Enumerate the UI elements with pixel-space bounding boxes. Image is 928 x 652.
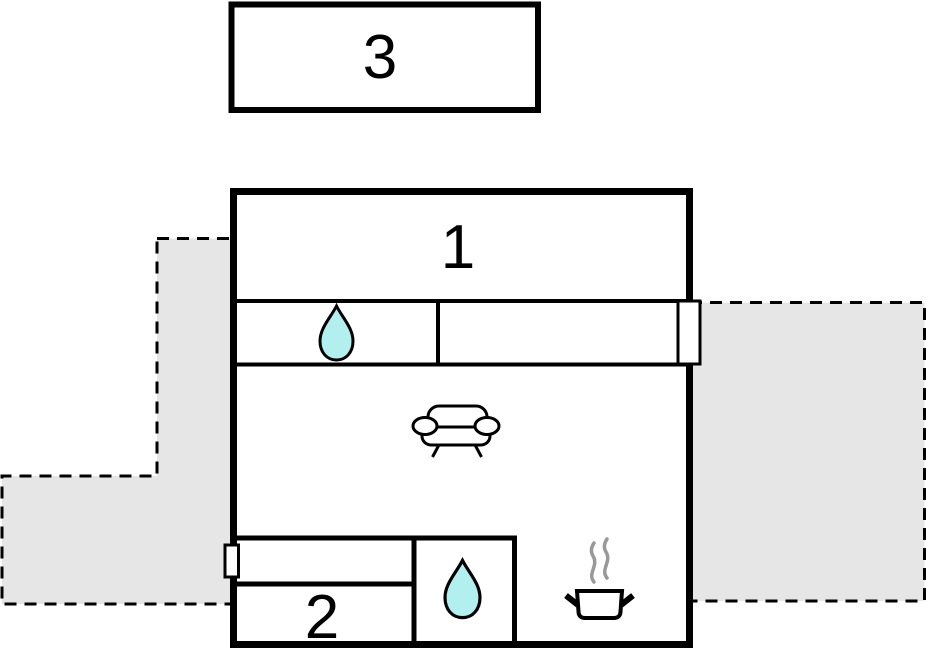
room-1-label: 1 <box>441 213 475 282</box>
terrace-left <box>2 239 234 605</box>
floorplan-canvas: 3 1 2 <box>0 0 928 652</box>
door-left <box>225 545 239 577</box>
annex-label: 3 <box>363 23 397 92</box>
room-2-label: 2 <box>305 583 339 652</box>
terrace-right <box>690 303 925 602</box>
door-right <box>678 301 700 364</box>
floorplan-svg: 3 1 2 <box>0 0 928 652</box>
